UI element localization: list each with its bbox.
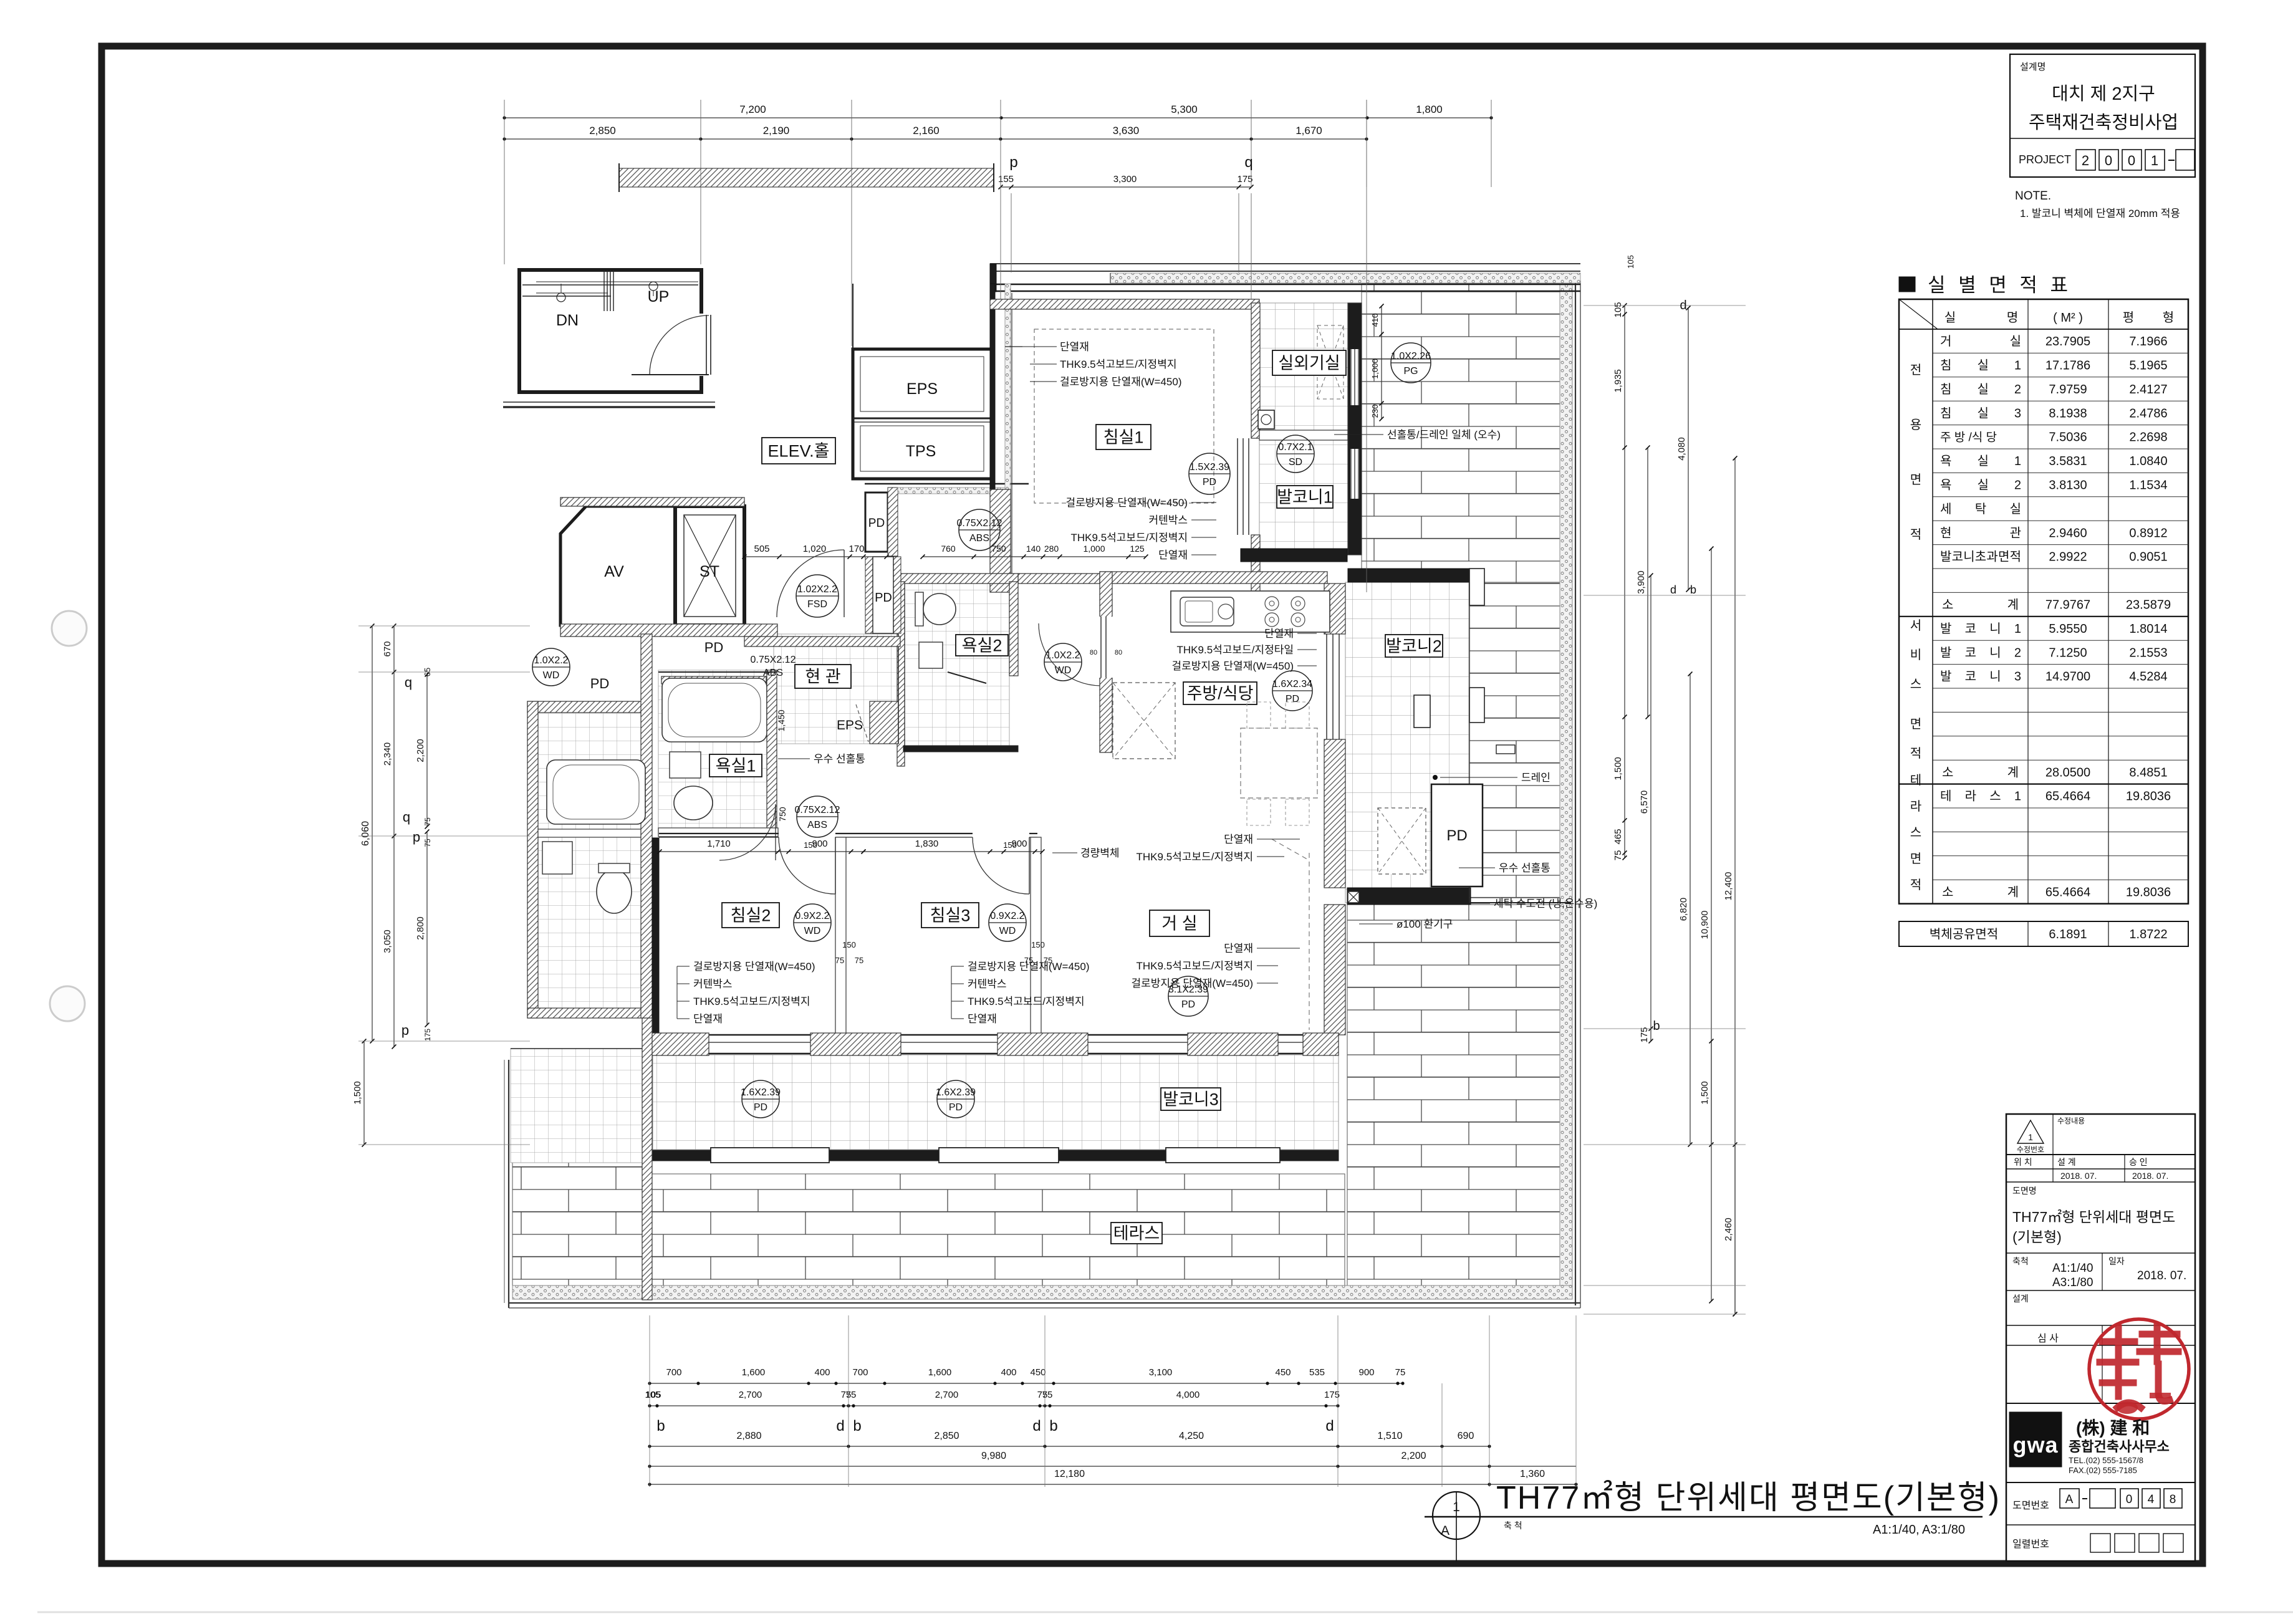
svg-text:침실1: 침실1 <box>1103 428 1144 447</box>
svg-text:걸로방지용 단열재(W=450): 걸로방지용 단열재(W=450) <box>1060 376 1182 388</box>
svg-text:발코니3: 발코니3 <box>1163 1090 1219 1109</box>
svg-text:d: d <box>1325 1418 1334 1434</box>
svg-text:150: 150 <box>804 840 817 850</box>
svg-text:5,300: 5,300 <box>1171 103 1198 115</box>
svg-text:170: 170 <box>848 544 864 554</box>
svg-text:침실3: 침실3 <box>930 906 971 925</box>
svg-text:2,160: 2,160 <box>913 125 940 137</box>
svg-text:4: 4 <box>2148 1493 2155 1506</box>
svg-text:설 계: 설 계 <box>2057 1157 2076 1167</box>
svg-text:2,880: 2,880 <box>736 1431 761 1441</box>
svg-text:b: b <box>1049 1418 1057 1434</box>
svg-text:760: 760 <box>941 544 956 554</box>
svg-text:A: A <box>2065 1493 2074 1506</box>
svg-text:DN: DN <box>556 312 579 329</box>
svg-text:계: 계 <box>2007 885 2019 899</box>
svg-text:5.1965: 5.1965 <box>2129 359 2167 373</box>
svg-text:3,630: 3,630 <box>1113 125 1140 137</box>
svg-text:1,020: 1,020 <box>803 544 827 554</box>
svg-text:벽체공유면적: 벽체공유면적 <box>1930 927 1998 941</box>
svg-text:EPS: EPS <box>837 718 863 733</box>
svg-text:0: 0 <box>2105 153 2112 168</box>
svg-text:커텐박스: 커텐박스 <box>968 978 1007 990</box>
svg-text:PD: PD <box>1181 999 1195 1010</box>
svg-text:평: 평 <box>2123 310 2134 325</box>
svg-text:ABS: ABS <box>763 668 783 678</box>
svg-text:PD: PD <box>1446 827 1467 844</box>
svg-text:d: d <box>1680 299 1686 312</box>
svg-text:WD: WD <box>999 926 1016 936</box>
svg-text:q: q <box>403 809 410 825</box>
svg-text:8: 8 <box>2170 1493 2176 1506</box>
svg-text:750: 750 <box>991 544 1006 554</box>
svg-text:75: 75 <box>1037 1390 1048 1400</box>
svg-text:0.9051: 0.9051 <box>2129 550 2167 564</box>
svg-text:0.9X2.2: 0.9X2.2 <box>795 911 829 921</box>
svg-text:0.75X2.12: 0.75X2.12 <box>751 655 796 665</box>
svg-text:80: 80 <box>1090 649 1097 656</box>
svg-text:410: 410 <box>1370 314 1380 327</box>
svg-text:75: 75 <box>1613 850 1623 861</box>
svg-text:테라스: 테라스 <box>1113 1224 1160 1243</box>
svg-text:p: p <box>401 1022 409 1038</box>
svg-text:1,450: 1,450 <box>776 709 786 731</box>
svg-text:1: 1 <box>1453 1500 1460 1514</box>
svg-text:2,200: 2,200 <box>1401 1451 1426 1461</box>
svg-text:A1:1/40, A3:1/80: A1:1/40, A3:1/80 <box>1873 1523 1965 1537</box>
svg-text:4,080: 4,080 <box>1676 437 1687 461</box>
svg-text:0: 0 <box>2128 153 2135 168</box>
svg-text:d: d <box>1032 1418 1041 1434</box>
svg-text:A: A <box>1441 1524 1449 1538</box>
svg-text:9,980: 9,980 <box>981 1451 1006 1461</box>
svg-text:단열재: 단열재 <box>1264 628 1294 640</box>
svg-text:THK9.5석고보드/지정타일: THK9.5석고보드/지정타일 <box>1177 644 1294 656</box>
svg-text:2,850: 2,850 <box>934 1431 959 1441</box>
svg-text:465: 465 <box>1613 829 1623 844</box>
svg-text:(기본형): (기본형) <box>2012 1229 2062 1245</box>
svg-text:2,190: 2,190 <box>763 125 790 137</box>
svg-text:커텐박스: 커텐박스 <box>693 978 733 990</box>
svg-text:걸로방지용 단열재(W=450): 걸로방지용 단열재(W=450) <box>693 961 815 973</box>
svg-text:75: 75 <box>835 956 844 965</box>
svg-text:드레인: 드레인 <box>1521 772 1550 784</box>
svg-text:b: b <box>853 1418 861 1434</box>
svg-text:b: b <box>656 1418 665 1434</box>
svg-text:2,850: 2,850 <box>589 125 616 137</box>
svg-text:2,200: 2,200 <box>415 739 426 762</box>
svg-text:0: 0 <box>2126 1493 2133 1506</box>
svg-text:ELEV.홀: ELEV.홀 <box>768 442 830 461</box>
svg-text:77.9767: 77.9767 <box>2045 598 2090 612</box>
svg-text:THK9.5석고보드/지정벽지: THK9.5석고보드/지정벽지 <box>1071 532 1188 544</box>
svg-text:1. 발코니 벽체에 단열재 20mm 적용: 1. 발코니 벽체에 단열재 20mm 적용 <box>2020 208 2180 219</box>
svg-text:현 관: 현 관 <box>805 668 840 686</box>
svg-text:4,000: 4,000 <box>1176 1390 1200 1400</box>
svg-text:175: 175 <box>1324 1390 1340 1400</box>
svg-text:75: 75 <box>1395 1367 1406 1378</box>
svg-text:면: 면 <box>1910 717 1921 731</box>
svg-text:140: 140 <box>1026 544 1041 554</box>
svg-text:12,400: 12,400 <box>1723 872 1734 901</box>
svg-text:2,700: 2,700 <box>935 1390 959 1400</box>
svg-text:1.6X2.34: 1.6X2.34 <box>1272 679 1312 689</box>
svg-text:2018. 07.: 2018. 07. <box>2132 1171 2168 1181</box>
svg-text:걸로방지용 단열재(W=450): 걸로방지용 단열재(W=450) <box>1171 660 1294 672</box>
svg-text:계: 계 <box>2007 765 2019 779</box>
svg-text:수정번호: 수정번호 <box>2017 1145 2044 1154</box>
svg-text:125: 125 <box>1130 544 1145 554</box>
svg-text:10,900: 10,900 <box>1699 911 1710 939</box>
svg-text:PD: PD <box>754 1102 767 1113</box>
svg-text:위 치: 위 치 <box>2014 1157 2032 1167</box>
svg-text:80: 80 <box>1115 649 1122 656</box>
svg-text:d: d <box>836 1418 844 1434</box>
svg-text:설계명: 설계명 <box>2020 62 2045 72</box>
svg-text:단열재: 단열재 <box>968 1013 997 1025</box>
svg-text:욕실2: 욕실2 <box>962 637 1002 655</box>
svg-text:b: b <box>1653 1019 1660 1033</box>
svg-text:8.1938: 8.1938 <box>2049 406 2087 420</box>
svg-text:TPS: TPS <box>906 443 936 460</box>
svg-text:19.8036: 19.8036 <box>2126 790 2171 804</box>
svg-text:스: 스 <box>1910 678 1921 691</box>
svg-text:12,180: 12,180 <box>1054 1469 1085 1479</box>
svg-text:3,300: 3,300 <box>1113 174 1137 185</box>
svg-text:280: 280 <box>1044 544 1059 554</box>
svg-text:커텐박스: 커텐박스 <box>1148 514 1188 526</box>
svg-text:23.7905: 23.7905 <box>2045 335 2090 348</box>
svg-text:심 사: 심 사 <box>2037 1333 2059 1344</box>
svg-text:우수 선홀통: 우수 선홀통 <box>814 753 865 765</box>
svg-text:65.4664: 65.4664 <box>2045 885 2090 899</box>
svg-text:900: 900 <box>1358 1367 1374 1378</box>
svg-text:소: 소 <box>1942 598 1953 612</box>
svg-text:0.9X2.2: 0.9X2.2 <box>990 911 1024 921</box>
svg-text:1,510: 1,510 <box>1377 1431 1402 1441</box>
svg-text:d: d <box>1670 584 1676 596</box>
svg-text:6,570: 6,570 <box>1639 790 1650 814</box>
svg-text:1.1534: 1.1534 <box>2129 479 2167 492</box>
svg-text:( M² ): ( M² ) <box>2053 311 2083 325</box>
svg-text:1.5X2.39: 1.5X2.39 <box>1190 462 1229 473</box>
svg-text:PD: PD <box>1286 694 1299 704</box>
svg-text:6,060: 6,060 <box>360 821 371 846</box>
svg-text:14.9700: 14.9700 <box>2045 670 2090 684</box>
svg-text:우수 선홀통: 우수 선홀통 <box>1499 862 1550 874</box>
svg-text:0.75X2.12: 0.75X2.12 <box>957 518 1002 529</box>
svg-text:1.6X2.39: 1.6X2.39 <box>936 1087 976 1098</box>
svg-text:발코니2: 발코니2 <box>1386 637 1442 656</box>
svg-text:THK9.5석고보드/지정벽지: THK9.5석고보드/지정벽지 <box>693 996 810 1007</box>
svg-text:65.4664: 65.4664 <box>2045 790 2090 804</box>
svg-text:종합건축사사무소: 종합건축사사무소 <box>2069 1439 2170 1454</box>
svg-text:(株) 建 和: (株) 建 和 <box>2076 1418 2150 1438</box>
svg-text:400: 400 <box>1001 1367 1016 1378</box>
svg-text:2.4127: 2.4127 <box>2129 383 2167 396</box>
svg-text:주방/식당: 주방/식당 <box>1187 685 1254 703</box>
svg-text:A1:1/40: A1:1/40 <box>2052 1262 2094 1275</box>
svg-text:5.9550: 5.9550 <box>2049 622 2087 636</box>
svg-text:PROJECT: PROJECT <box>2019 153 2071 166</box>
svg-text:670: 670 <box>382 641 393 656</box>
svg-text:TEL.(02) 555-1567/8: TEL.(02) 555-1567/8 <box>2069 1456 2143 1465</box>
svg-text:TH77㎡형 단위세대 평면도(기본형): TH77㎡형 단위세대 평면도(기본형) <box>1496 1479 2001 1516</box>
svg-text:750: 750 <box>777 807 787 822</box>
svg-text:75: 75 <box>423 817 432 826</box>
svg-text:대치 제 2지구: 대치 제 2지구 <box>2052 84 2155 104</box>
svg-text:1.8014: 1.8014 <box>2129 622 2167 636</box>
svg-text:면: 면 <box>1910 852 1921 866</box>
svg-text:일자: 일자 <box>2108 1256 2125 1266</box>
svg-text:WD: WD <box>543 670 560 681</box>
svg-text:ABS: ABS <box>807 820 827 830</box>
svg-text:라: 라 <box>1910 799 1921 814</box>
svg-text:PD: PD <box>949 1102 963 1113</box>
svg-text:THK9.5석고보드/지정벽지: THK9.5석고보드/지정벽지 <box>1137 851 1253 863</box>
svg-text:450: 450 <box>1275 1367 1291 1378</box>
svg-text:1.0X2.2: 1.0X2.2 <box>1046 650 1080 661</box>
svg-text:6,820: 6,820 <box>1678 898 1689 921</box>
svg-text:150: 150 <box>1031 940 1045 949</box>
svg-text:WD: WD <box>804 926 821 936</box>
svg-text:비: 비 <box>1910 648 1921 662</box>
svg-text:PD: PD <box>1203 477 1216 488</box>
svg-text:1: 1 <box>2028 1132 2033 1142</box>
svg-text:2018. 07.: 2018. 07. <box>2060 1171 2097 1181</box>
svg-text:7.1966: 7.1966 <box>2129 335 2167 348</box>
svg-text:주 방 /식 당: 주 방 /식 당 <box>1940 431 1997 444</box>
svg-text:400: 400 <box>814 1367 830 1378</box>
svg-text:PG: PG <box>1403 366 1418 377</box>
svg-text:p: p <box>413 829 420 845</box>
svg-text:NOTE.: NOTE. <box>2015 190 2051 203</box>
svg-text:700: 700 <box>666 1367 681 1378</box>
svg-text:q: q <box>1244 154 1252 171</box>
svg-text:28.0500: 28.0500 <box>2045 766 2090 779</box>
svg-text:1.8722: 1.8722 <box>2129 928 2167 941</box>
svg-text:단열재: 단열재 <box>1060 341 1089 353</box>
svg-text:THK9.5석고보드/지정벽지: THK9.5석고보드/지정벽지 <box>968 996 1084 1007</box>
svg-text:175: 175 <box>423 1029 432 1041</box>
svg-text:FSD: FSD <box>807 599 827 610</box>
svg-text:축척: 축척 <box>2012 1256 2029 1266</box>
svg-text:승 인: 승 인 <box>2129 1157 2148 1167</box>
svg-text:gwa: gwa <box>2012 1432 2058 1458</box>
svg-text:105: 105 <box>1613 302 1623 317</box>
svg-text:실: 실 <box>1944 310 1956 325</box>
svg-text:2.9922: 2.9922 <box>2049 550 2087 564</box>
svg-text:450: 450 <box>1030 1367 1046 1378</box>
svg-text:1.6X2.39: 1.6X2.39 <box>741 1087 781 1098</box>
svg-text:형: 형 <box>2163 310 2174 325</box>
svg-text:PD: PD <box>868 517 885 530</box>
svg-text:8.4851: 8.4851 <box>2129 766 2167 779</box>
svg-text:505: 505 <box>754 544 769 554</box>
svg-text:1,000: 1,000 <box>1083 544 1105 554</box>
svg-text:발코니초과면적: 발코니초과면적 <box>1940 550 2021 564</box>
svg-text:75: 75 <box>855 956 863 965</box>
svg-text:p: p <box>1009 154 1017 171</box>
svg-text:3,050: 3,050 <box>382 930 393 953</box>
svg-text:1,800: 1,800 <box>1416 103 1443 115</box>
svg-text:2.1553: 2.1553 <box>2129 646 2167 660</box>
svg-text:1.0840: 1.0840 <box>2129 454 2167 468</box>
svg-text:1,670: 1,670 <box>1296 125 1322 137</box>
svg-text:2,460: 2,460 <box>1723 1218 1734 1241</box>
svg-text:75: 75 <box>1044 956 1052 965</box>
svg-text:q: q <box>405 675 412 690</box>
svg-text:690: 690 <box>1458 1431 1474 1441</box>
svg-text:175: 175 <box>1237 174 1252 185</box>
svg-text:선홀통/드레인 일체 (오수): 선홀통/드레인 일체 (오수) <box>1387 429 1501 441</box>
svg-text:230: 230 <box>1370 405 1380 418</box>
svg-text:THK9.5석고보드/지정벽지: THK9.5석고보드/지정벽지 <box>1137 960 1253 972</box>
svg-text:0.75X2.12: 0.75X2.12 <box>795 805 840 815</box>
svg-text:실 별 면 적 표: 실 별 면 적 표 <box>1928 274 2072 296</box>
svg-text:발코니1: 발코니1 <box>1277 488 1333 507</box>
svg-text:2,800: 2,800 <box>415 916 426 940</box>
svg-text:축 척: 축 척 <box>1504 1521 1522 1530</box>
svg-text:23.5879: 23.5879 <box>2126 598 2171 612</box>
svg-text:2,340: 2,340 <box>382 742 393 766</box>
svg-text:105: 105 <box>645 1390 660 1400</box>
svg-text:경량벽체: 경량벽체 <box>1080 847 1120 859</box>
svg-text:1,600: 1,600 <box>742 1367 766 1378</box>
svg-text:단열재: 단열재 <box>1158 549 1188 561</box>
svg-text:단열재: 단열재 <box>1224 834 1253 845</box>
svg-text:서: 서 <box>1910 618 1921 633</box>
svg-text:소: 소 <box>1942 766 1953 779</box>
svg-text:3.5831: 3.5831 <box>2049 454 2087 468</box>
svg-text:주택재건축정비사업: 주택재건축정비사업 <box>2029 112 2178 133</box>
svg-text:2.9460: 2.9460 <box>2049 526 2087 540</box>
svg-text:150: 150 <box>1003 840 1017 850</box>
svg-text:거 실: 거 실 <box>1161 915 1197 933</box>
svg-text:4.5284: 4.5284 <box>2129 670 2167 684</box>
svg-text:THK9.5석고보드/지정벽지: THK9.5석고보드/지정벽지 <box>1060 358 1176 370</box>
svg-text:75: 75 <box>423 838 432 847</box>
svg-text:소: 소 <box>1942 885 1953 899</box>
svg-text:단열재: 단열재 <box>1224 943 1253 954</box>
svg-text:TH77㎡형 단위세대 평면도: TH77㎡형 단위세대 평면도 <box>2012 1209 2175 1225</box>
svg-text:7.5036: 7.5036 <box>2049 431 2087 444</box>
svg-text:1.0X2.2: 1.0X2.2 <box>534 655 568 666</box>
svg-text:PD: PD <box>590 676 610 691</box>
svg-text:1.0X2.26: 1.0X2.26 <box>1391 351 1431 362</box>
svg-text:단열재: 단열재 <box>693 1013 723 1025</box>
svg-text:3.8130: 3.8130 <box>2049 479 2087 492</box>
svg-text:적: 적 <box>1910 746 1921 761</box>
svg-text:1,500: 1,500 <box>1613 757 1623 781</box>
svg-text:도면번호: 도면번호 <box>2012 1500 2049 1511</box>
svg-text:PD: PD <box>704 640 724 655</box>
svg-text:2018. 07.: 2018. 07. <box>2137 1269 2186 1282</box>
svg-text:1,360: 1,360 <box>1520 1469 1545 1479</box>
svg-text:17.1786: 17.1786 <box>2045 359 2090 373</box>
svg-text:실외기실: 실외기실 <box>1278 354 1340 373</box>
svg-text:PD: PD <box>875 591 892 605</box>
svg-text:계: 계 <box>2007 598 2019 612</box>
svg-text:7,200: 7,200 <box>739 103 766 115</box>
svg-text:SD: SD <box>1289 457 1302 468</box>
svg-text:세탁 수도전 (냉,온수용): 세탁 수도전 (냉,온수용) <box>1494 898 1597 910</box>
svg-text:2.4786: 2.4786 <box>2129 406 2167 420</box>
svg-text:적: 적 <box>1910 527 1921 542</box>
svg-text:1: 1 <box>2151 153 2158 168</box>
svg-text:2.2698: 2.2698 <box>2129 431 2167 444</box>
svg-text:EPS: EPS <box>906 380 938 398</box>
svg-text:19.8036: 19.8036 <box>2126 885 2171 899</box>
svg-text:일렬번호: 일렬번호 <box>2012 1539 2049 1550</box>
svg-text:75: 75 <box>1024 956 1033 965</box>
svg-text:스: 스 <box>1910 826 1921 840</box>
svg-text:6.1891: 6.1891 <box>2049 928 2087 941</box>
svg-text:욕실1: 욕실1 <box>716 757 756 776</box>
svg-text:UP: UP <box>648 288 670 305</box>
svg-text:도면명: 도면명 <box>2012 1186 2037 1196</box>
svg-text:용: 용 <box>1910 418 1921 432</box>
svg-text:0.8912: 0.8912 <box>2129 526 2167 540</box>
svg-text:175: 175 <box>1639 1027 1650 1042</box>
svg-text:3,100: 3,100 <box>1149 1367 1173 1378</box>
svg-text:ø100 환기구: ø100 환기구 <box>1396 918 1453 930</box>
svg-text:1,830: 1,830 <box>915 838 939 849</box>
svg-text:150: 150 <box>842 940 856 949</box>
svg-text:걸로방지용 단열재(W=450): 걸로방지용 단열재(W=450) <box>1131 978 1253 989</box>
svg-text:b: b <box>1690 584 1696 596</box>
svg-text:7.9759: 7.9759 <box>2049 383 2087 396</box>
svg-text:2,700: 2,700 <box>739 1390 762 1400</box>
svg-text:적: 적 <box>1910 878 1921 892</box>
svg-text:0.7X2.1: 0.7X2.1 <box>1278 442 1312 453</box>
svg-text:4,250: 4,250 <box>1179 1431 1204 1441</box>
svg-text:ST: ST <box>699 563 719 580</box>
svg-text:1,500: 1,500 <box>352 1081 363 1105</box>
svg-text:전: 전 <box>1910 363 1921 377</box>
svg-text:1,710: 1,710 <box>707 838 731 849</box>
svg-text:설계: 설계 <box>2012 1294 2029 1304</box>
svg-text:WD: WD <box>1055 665 1072 676</box>
svg-text:테: 테 <box>1910 773 1921 787</box>
svg-text:1,500: 1,500 <box>1699 1081 1710 1105</box>
svg-text:1,000: 1,000 <box>1370 358 1380 379</box>
svg-text:1,935: 1,935 <box>1613 369 1623 393</box>
svg-text:75: 75 <box>841 1390 852 1400</box>
svg-text:7.1250: 7.1250 <box>2049 646 2087 660</box>
svg-text:걸로방지용 단열재(W=450): 걸로방지용 단열재(W=450) <box>1065 497 1188 509</box>
svg-text:1.02X2.2: 1.02X2.2 <box>797 584 837 595</box>
svg-text:105: 105 <box>1626 255 1635 269</box>
svg-text:2: 2 <box>2082 153 2089 168</box>
svg-text:FAX.(02) 555-7185: FAX.(02) 555-7185 <box>2069 1466 2137 1475</box>
svg-text:3,900: 3,900 <box>1636 570 1646 594</box>
svg-text:수정내용: 수정내용 <box>2057 1117 2085 1125</box>
svg-text:침실2: 침실2 <box>731 906 771 925</box>
svg-text:1,600: 1,600 <box>928 1367 952 1378</box>
svg-text:A3:1/80: A3:1/80 <box>2052 1276 2094 1289</box>
svg-text:700: 700 <box>852 1367 868 1378</box>
svg-text:AV: AV <box>604 563 624 580</box>
svg-text:535: 535 <box>1309 1367 1325 1378</box>
svg-text:면: 면 <box>1910 473 1921 487</box>
svg-text:ABS: ABS <box>969 533 989 544</box>
svg-text:명: 명 <box>2007 310 2018 325</box>
